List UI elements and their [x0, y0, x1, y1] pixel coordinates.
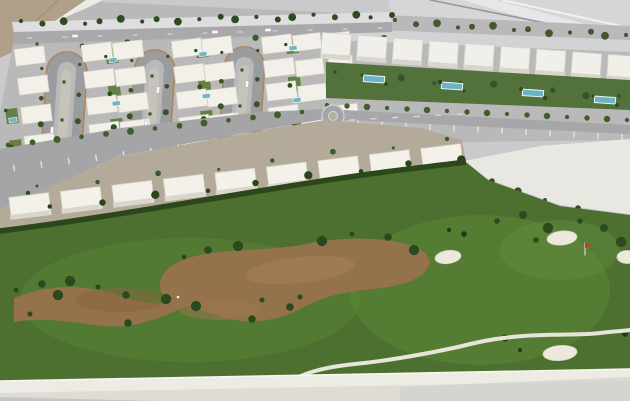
golfer-figure	[177, 296, 180, 299]
architectural-model-photograph	[0, 0, 630, 401]
dirt-shadow	[75, 288, 165, 312]
roundabout-island	[329, 112, 338, 121]
scene-svg	[0, 0, 630, 401]
